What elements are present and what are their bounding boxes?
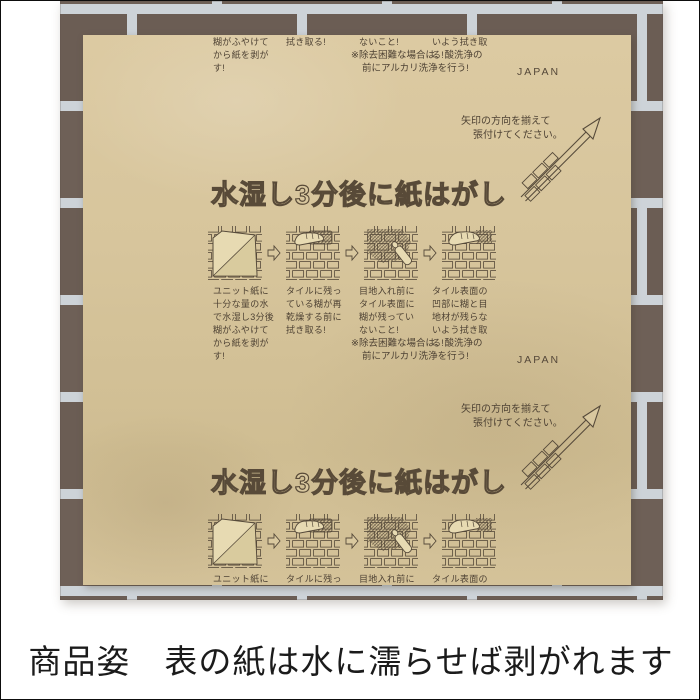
grout-trowel-icon [363, 513, 419, 569]
product-photo-page: 水湿し3分後に紙はがし [0, 0, 700, 700]
cleaning-note-line1: ※除去困難な場合は、酸洗浄の [351, 49, 561, 62]
step-caption-1: ユニット紙に十分な量の水で水湿し3分後糊がふやけてから紙を剥がす! [213, 35, 277, 75]
instruction-pictograms [207, 513, 499, 569]
peel-paper-icon [207, 225, 263, 281]
step-arrow-icon [267, 243, 281, 263]
print-title: 水湿し3分後に紙はがし [211, 173, 507, 212]
caption-bar: 商品姿 表の紙は水に濡らせば剥がれます [1, 617, 700, 700]
kraft-paper-facing: 水湿し3分後に紙はがし [83, 35, 631, 585]
instruction-pictograms [207, 225, 499, 281]
wipe-surface-icon [441, 225, 497, 281]
step-arrow-icon [267, 531, 281, 551]
print-block-middle: 水湿し3分後に紙はがし [83, 173, 631, 461]
step-caption-2: タイルに残っている糊が再乾燥する前に拭き取る! [286, 573, 350, 585]
step-arrow-icon [345, 531, 359, 551]
wipe-surface-icon [441, 513, 497, 569]
print-title: 水湿し3分後に紙はがし [211, 461, 507, 500]
step-caption-1: ユニット紙に十分な量の水で水湿し3分後糊がふやけてから紙を剥がす! [213, 285, 277, 363]
japan-label: JAPAN [517, 66, 560, 78]
step-arrow-icon [423, 531, 437, 551]
wipe-glue-icon [285, 513, 341, 569]
print-block-top-partial: 水湿し3分後に紙はがし [83, 35, 631, 173]
step-arrow-icon [345, 243, 359, 263]
peel-paper-icon [207, 513, 263, 569]
step-captions: ユニット紙に十分な量の水で水湿し3分後糊がふやけてから紙を剥がす! タイルに残っ… [213, 573, 505, 585]
cleaning-note-line1: ※除去困難な場合は、酸洗浄の [351, 337, 561, 350]
product-photo: 水湿し3分後に紙はがし [1, 1, 700, 615]
step-caption-2: タイルに残っている糊が再乾燥する前に拭き取る! [286, 285, 350, 363]
product-caption: 商品姿 表の紙は水に濡らせば剥がれます [28, 635, 673, 683]
japan-label: JAPAN [517, 354, 560, 366]
step-arrow-icon [423, 243, 437, 263]
step-caption-4: タイル表面の凹部に糊と目地材が残らないよう拭き取る! [432, 573, 496, 585]
step-caption-3: 目地入れ前にタイル表面に糊が残っていないこと! [359, 573, 423, 585]
print-block-bottom-partial: 水湿し3分後に紙はがし [83, 461, 631, 585]
grout-trowel-icon [363, 225, 419, 281]
step-caption-2: タイルに残っている糊が再乾燥する前に拭き取る! [286, 35, 350, 75]
wipe-glue-icon [285, 225, 341, 281]
step-caption-1: ユニット紙に十分な量の水で水湿し3分後糊がふやけてから紙を剥がす! [213, 573, 277, 585]
